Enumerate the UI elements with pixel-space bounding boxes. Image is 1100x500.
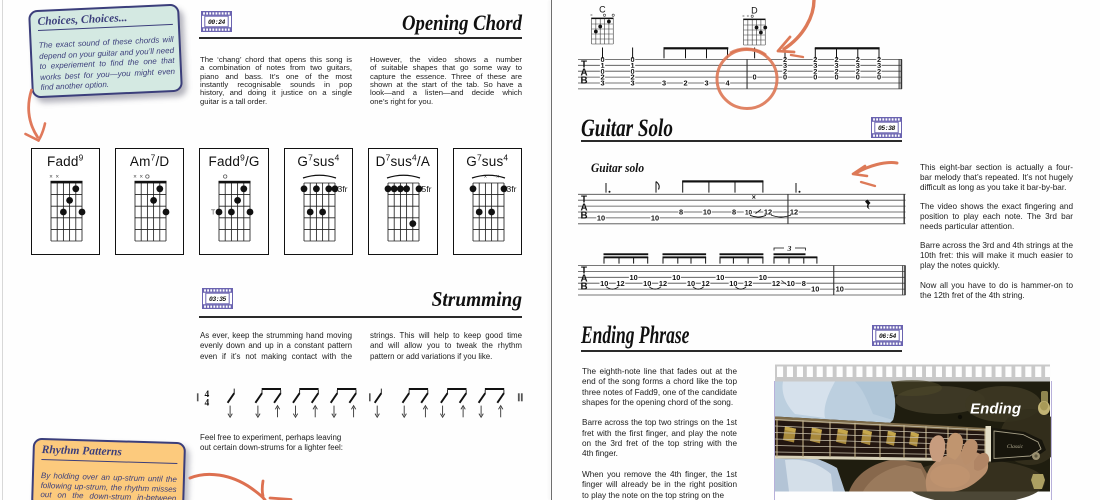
svg-text:D: D xyxy=(751,6,758,16)
svg-text:5fr: 5fr xyxy=(422,184,432,194)
svg-text:×: × xyxy=(49,175,53,181)
svg-text:06:54: 06:54 xyxy=(879,333,897,340)
svg-text:03:35: 03:35 xyxy=(209,296,227,303)
svg-text:0: 0 xyxy=(813,73,817,82)
svg-text:3fr: 3fr xyxy=(506,184,516,194)
svg-text:Classic: Classic xyxy=(1007,444,1024,450)
svg-text:×: × xyxy=(55,175,59,181)
svg-text:8: 8 xyxy=(679,208,683,217)
svg-text:8: 8 xyxy=(732,208,736,217)
svg-text:10: 10 xyxy=(729,279,737,288)
svg-text:10: 10 xyxy=(759,273,767,282)
svg-text:00:24: 00:24 xyxy=(208,19,226,26)
svg-text:Ending: Ending xyxy=(970,401,1021,418)
svg-text:4: 4 xyxy=(205,399,210,409)
svg-text:10: 10 xyxy=(672,273,680,282)
svg-text:2: 2 xyxy=(683,79,687,88)
svg-text:05:38: 05:38 xyxy=(878,125,896,132)
svg-text:T: T xyxy=(211,210,216,217)
svg-text:C: C xyxy=(599,5,606,15)
svg-text:3: 3 xyxy=(787,245,792,253)
svg-text:10: 10 xyxy=(600,279,608,288)
svg-text:12: 12 xyxy=(744,279,752,288)
svg-text:10: 10 xyxy=(716,273,724,282)
svg-text:10: 10 xyxy=(597,214,605,223)
svg-text:B: B xyxy=(580,282,587,293)
svg-text:3: 3 xyxy=(600,79,604,88)
svg-text:12: 12 xyxy=(772,279,780,288)
svg-text:12: 12 xyxy=(701,279,709,288)
svg-text:×: × xyxy=(746,13,749,18)
svg-text:12: 12 xyxy=(616,279,624,288)
svg-text:×: × xyxy=(742,13,745,18)
svg-text:×: × xyxy=(752,195,756,202)
svg-text:3: 3 xyxy=(704,79,708,88)
svg-text:10: 10 xyxy=(811,285,819,294)
svg-text:×: × xyxy=(590,12,593,17)
svg-text:10: 10 xyxy=(643,279,651,288)
svg-text:B: B xyxy=(580,75,587,86)
svg-text:12: 12 xyxy=(659,279,667,288)
svg-text:×: × xyxy=(133,175,137,181)
svg-text:10: 10 xyxy=(703,208,711,217)
svg-text:10: 10 xyxy=(629,273,637,282)
svg-text:10: 10 xyxy=(687,279,695,288)
svg-text:0: 0 xyxy=(834,73,838,82)
svg-text:12: 12 xyxy=(790,208,798,217)
svg-text:0: 0 xyxy=(856,73,860,82)
svg-text:0: 0 xyxy=(877,73,881,82)
svg-text:×: × xyxy=(139,175,143,181)
svg-text:10: 10 xyxy=(651,214,659,223)
svg-text:3fr: 3fr xyxy=(337,184,347,194)
svg-text:B: B xyxy=(580,210,587,221)
svg-text:10: 10 xyxy=(787,279,795,288)
svg-text:3: 3 xyxy=(631,79,635,88)
svg-text:10: 10 xyxy=(836,285,844,294)
svg-text:8: 8 xyxy=(802,279,806,288)
svg-text:3: 3 xyxy=(662,79,666,88)
